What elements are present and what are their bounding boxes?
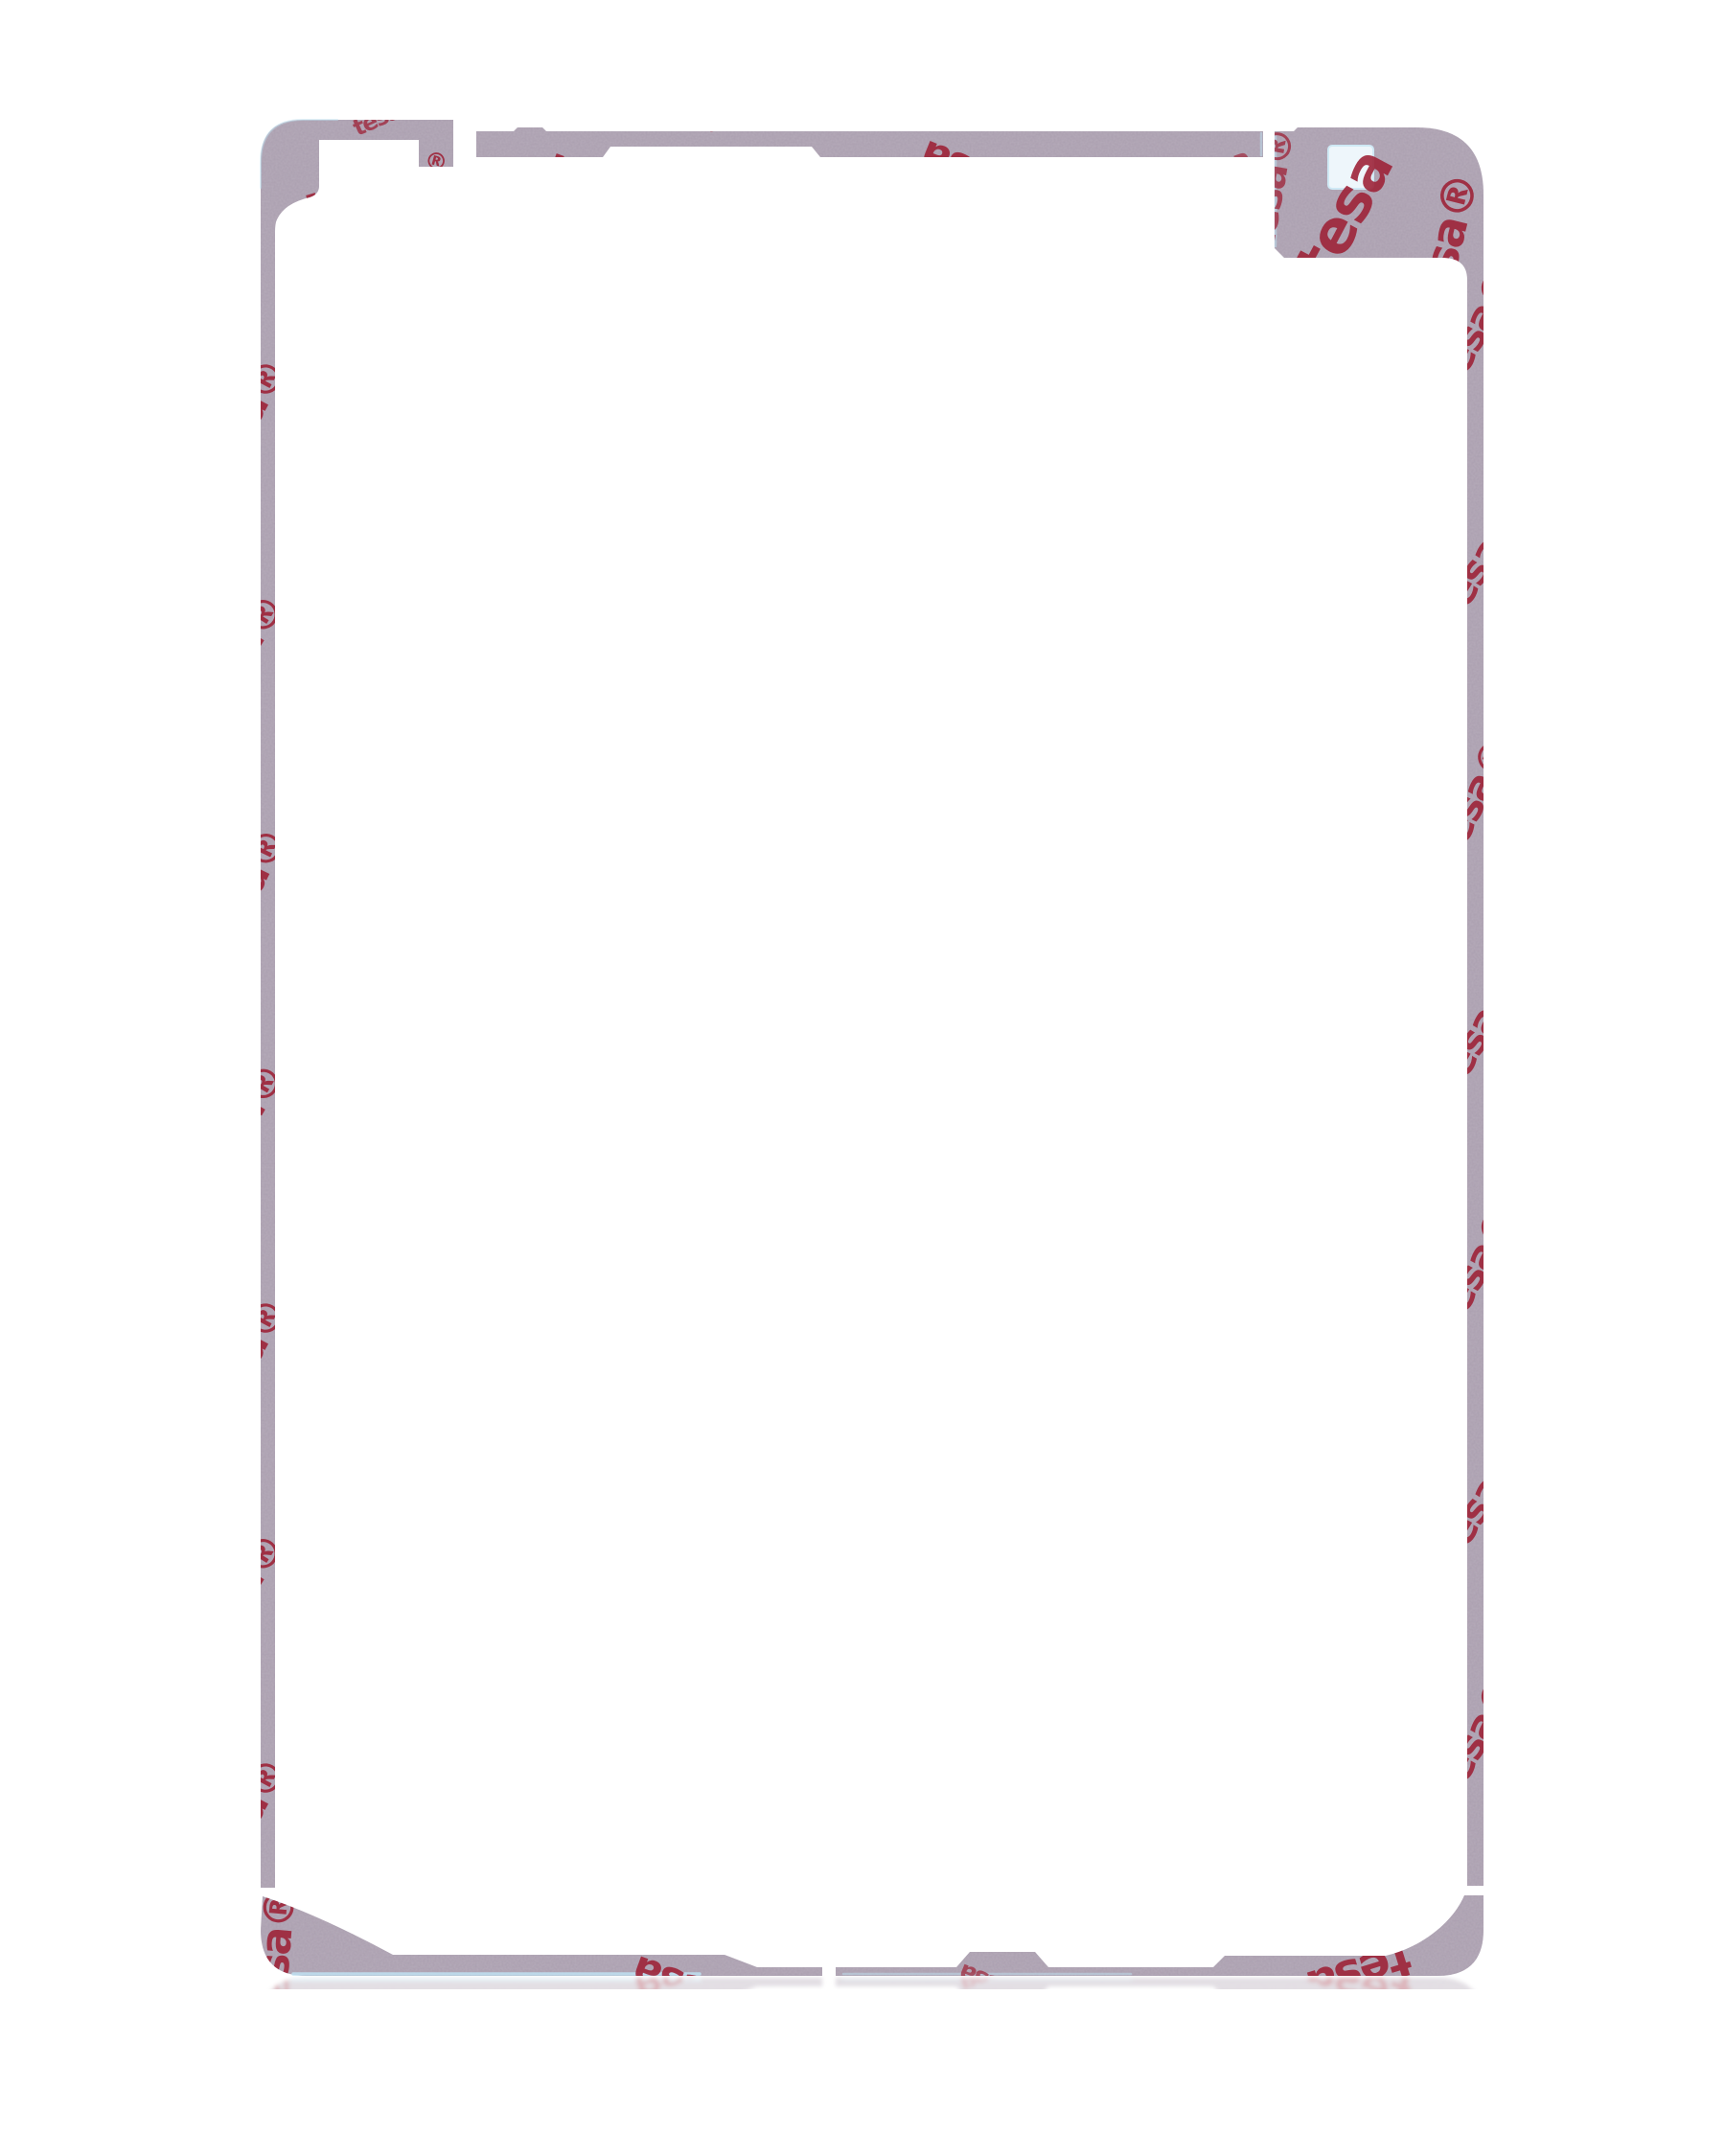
tesa-logo-print: tesa® bbox=[185, 587, 293, 722]
tesa-logo-print: tesa® bbox=[197, 822, 296, 958]
tesa-logo-print: tesa® bbox=[1424, 1670, 1526, 1805]
adhesive-frame: tesa ® tesa tesa® tesa® tesa® tesa® tesa… bbox=[185, 97, 1533, 2026]
tesa-prints: tesa ® tesa tesa® tesa® tesa® tesa® tesa… bbox=[185, 97, 1533, 2026]
tesa-logo-print: tesa® bbox=[194, 353, 295, 488]
tesa-logo-print: tesa® bbox=[194, 1752, 295, 1887]
tesa-logo-print: tesa® bbox=[1424, 1201, 1526, 1336]
tape-piece-top-left-and-left-strip bbox=[261, 120, 453, 1888]
tesa-logo-print: tesa® bbox=[194, 1292, 295, 1427]
prints-top-right: tesa tesa® tesa® tesa® tesa® tesa® tesa®… bbox=[1239, 126, 1533, 1805]
product-photo: tesa ® tesa tesa® tesa® tesa® tesa® tesa… bbox=[0, 0, 1725, 2156]
tesa-logo-print: tesa® bbox=[1424, 731, 1523, 867]
prints-top-strip: tesa tesa tesa tesa bbox=[540, 103, 1261, 228]
tesa-logo-print: tesa® bbox=[185, 1526, 293, 1661]
tape-pieces bbox=[261, 120, 1483, 1976]
tesa-logo-print: tesa® bbox=[189, 1057, 293, 1191]
adhesive-frame-photo: tesa ® tesa tesa® tesa® tesa® tesa® tesa… bbox=[0, 0, 1725, 2156]
tape-piece-top-right-and-right-strip bbox=[1275, 127, 1483, 1886]
prints-top-left: tesa ® tesa tesa® tesa® tesa® tesa® tesa… bbox=[185, 97, 448, 1886]
tesa-logo-print: tesa bbox=[300, 148, 435, 243]
tesa-logo-print: tesa® bbox=[1424, 262, 1526, 397]
tape-piece-bottom-left bbox=[261, 1896, 822, 1976]
tape-piece-top-strip bbox=[476, 127, 1263, 157]
edge-tints bbox=[261, 120, 1276, 1974]
